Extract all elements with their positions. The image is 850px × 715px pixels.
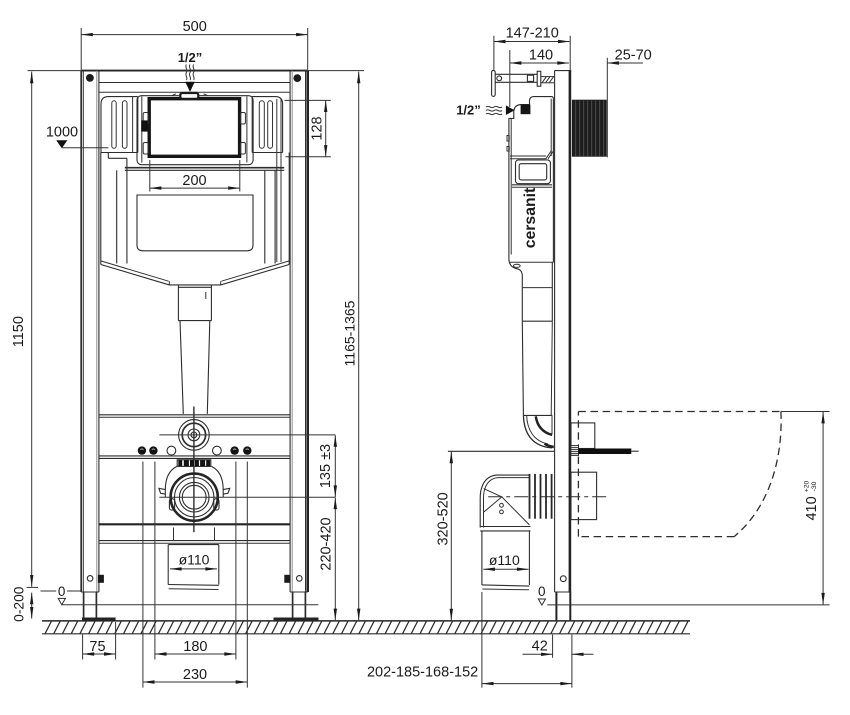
svg-text:0-200: 0-200 (12, 586, 27, 622)
svg-text:ø110: ø110 (179, 551, 210, 567)
svg-text:180: 180 (183, 639, 207, 655)
svg-text:230: 230 (183, 667, 207, 683)
svg-text:140: 140 (529, 47, 553, 63)
svg-text:1/2”: 1/2” (178, 50, 203, 65)
svg-text:128: 128 (310, 116, 326, 140)
svg-text:202-185-168-152: 202-185-168-152 (367, 665, 478, 681)
svg-text:1000: 1000 (46, 125, 78, 141)
svg-text:320-520: 320-520 (435, 492, 451, 545)
svg-text:ø110: ø110 (489, 552, 520, 568)
svg-text:+20: +20 (803, 481, 810, 493)
svg-text:147-210: 147-210 (506, 26, 559, 42)
svg-text:75: 75 (89, 639, 105, 655)
svg-text:25-70: 25-70 (615, 47, 652, 63)
svg-text:410: 410 (804, 496, 820, 520)
svg-text:1165-1365: 1165-1365 (341, 300, 357, 366)
svg-text:42: 42 (532, 639, 548, 655)
svg-text:220-420: 220-420 (319, 517, 335, 570)
svg-text:135 ±3: 135 ±3 (318, 444, 334, 488)
svg-text:cersanit: cersanit (522, 187, 539, 248)
svg-text:1150: 1150 (11, 316, 27, 347)
svg-text:0: 0 (538, 584, 546, 599)
svg-text:500: 500 (183, 19, 207, 35)
svg-text:1/2”: 1/2” (456, 102, 481, 117)
svg-text:-30: -30 (811, 481, 818, 491)
svg-text:0: 0 (58, 584, 66, 599)
svg-text:200: 200 (182, 173, 206, 189)
